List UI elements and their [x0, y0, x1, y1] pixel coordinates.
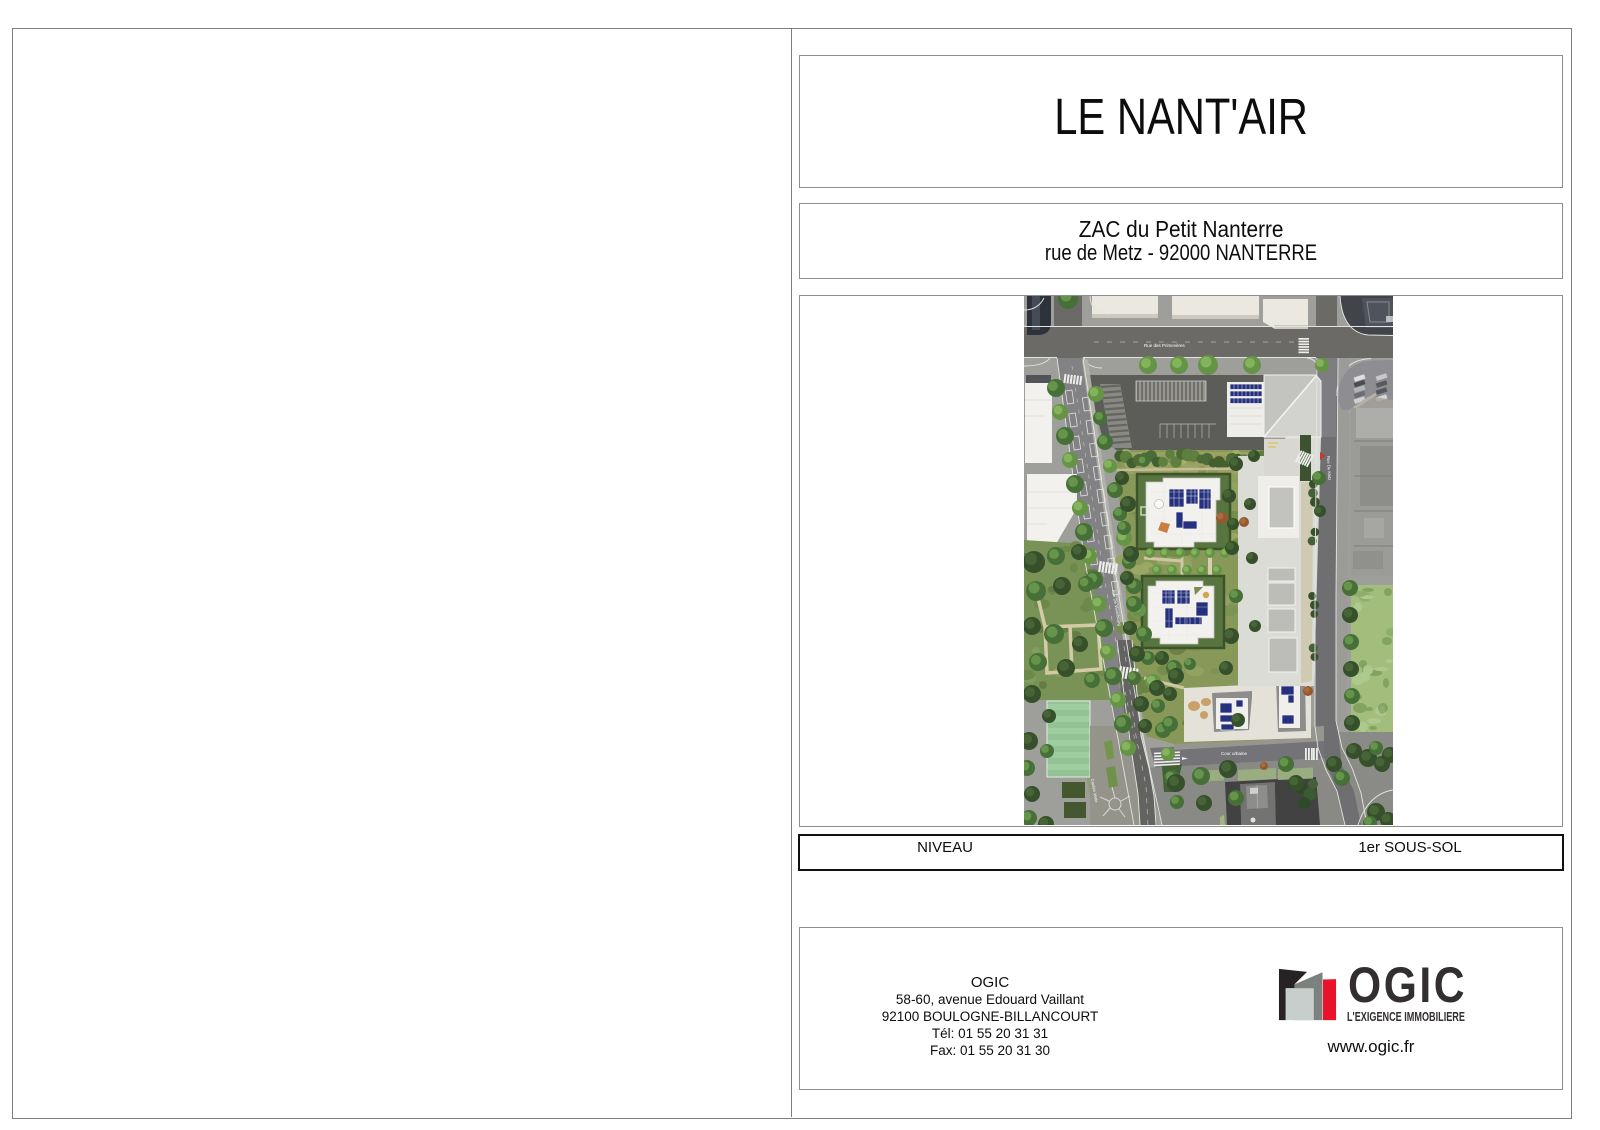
svg-text:Cour urbaine: Cour urbaine — [1221, 751, 1248, 756]
svg-text:Square: Square — [1033, 618, 1038, 632]
svg-text:Rue des Primevères: Rue des Primevères — [1144, 343, 1186, 348]
